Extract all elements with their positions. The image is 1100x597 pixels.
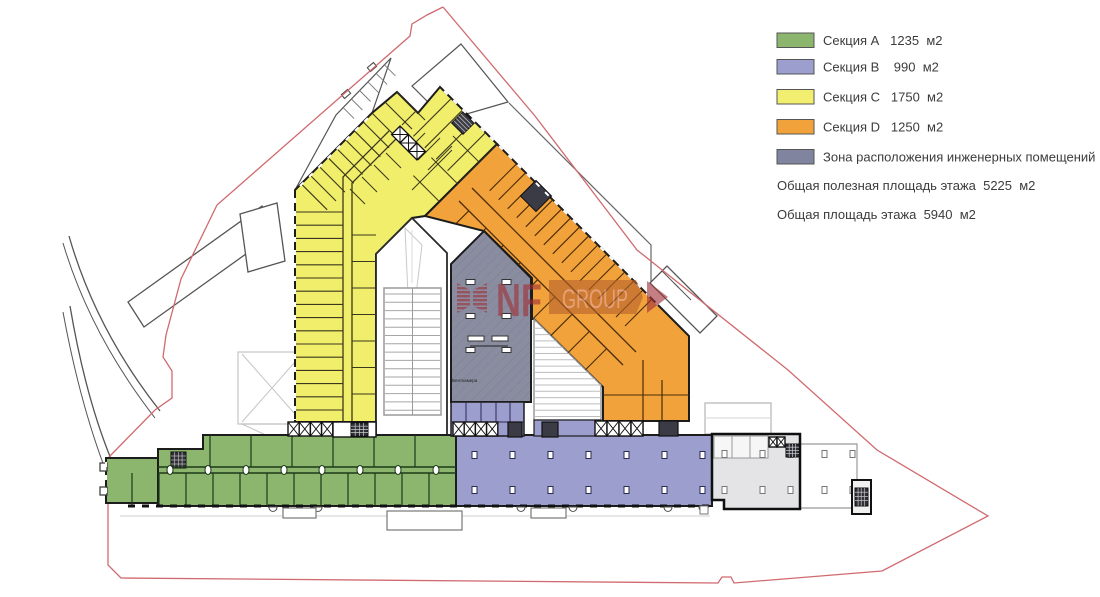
svg-text:NF: NF — [496, 274, 542, 326]
svg-text:Общая полезная площадь этажа: Общая полезная площадь этажа 5225 м2 — [777, 178, 1035, 193]
svg-text:Общая площадь этажа 5940 м2: Общая площадь этажа 5940 м2 — [777, 207, 976, 222]
svg-text:Секция C 1750 м2: Секция C 1750 м2 — [823, 90, 943, 105]
svg-text:Секция B 990 м2: Секция B 990 м2 — [823, 60, 939, 75]
svg-text:GROUP: GROUP — [562, 284, 628, 314]
svg-text:Зона расположения инженерных п: Зона расположения инженерных помещений — [823, 150, 1095, 165]
svg-text:Венткамера: Венткамера — [452, 378, 478, 383]
svg-text:Секция A 1235 м2: Секция A 1235 м2 — [823, 33, 942, 48]
svg-text:Секция D 1250 м2: Секция D 1250 м2 — [823, 120, 943, 135]
